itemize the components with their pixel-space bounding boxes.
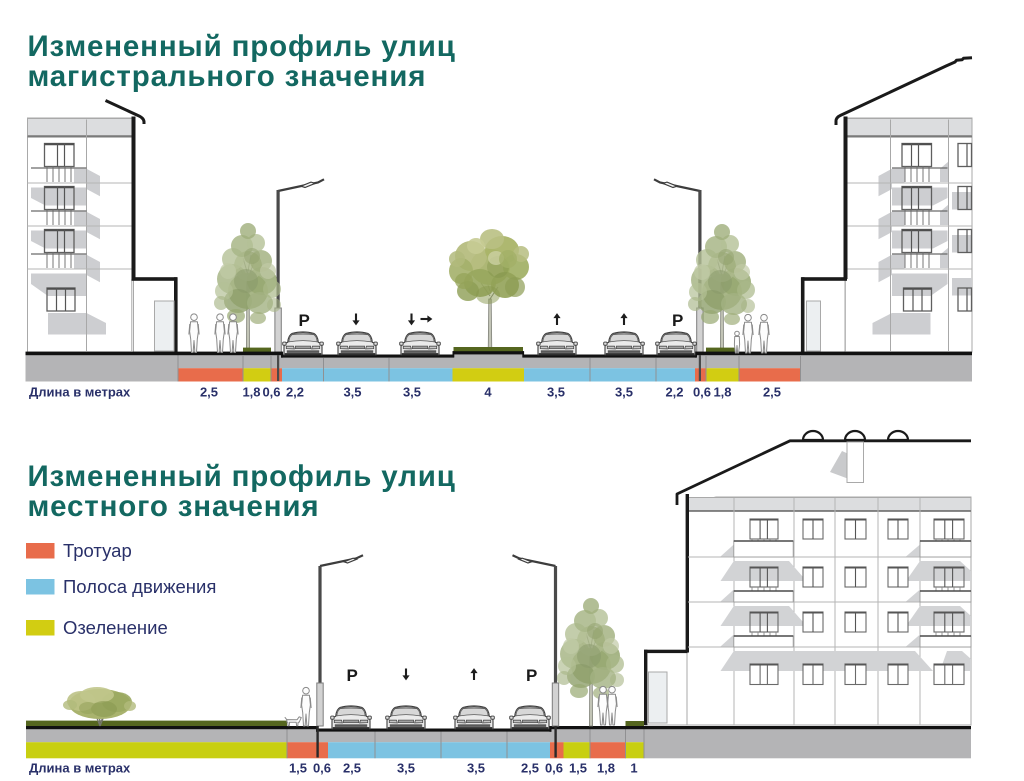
svg-text:0,6: 0,6: [545, 761, 563, 776]
svg-text:3,5: 3,5: [343, 385, 361, 400]
svg-text:0,6: 0,6: [313, 761, 331, 776]
svg-text:3,5: 3,5: [615, 385, 633, 400]
svg-text:Длина в метрах: Длина в метрах: [29, 761, 131, 776]
svg-text:Измененный профиль улиц: Измененный профиль улиц: [28, 30, 456, 63]
svg-text:1: 1: [630, 761, 637, 776]
svg-text:2,5: 2,5: [763, 385, 781, 400]
svg-text:3,5: 3,5: [547, 385, 565, 400]
svg-text:2,5: 2,5: [200, 385, 218, 400]
svg-text:1,5: 1,5: [569, 761, 587, 776]
svg-text:P: P: [347, 666, 358, 685]
svg-text:2,2: 2,2: [665, 385, 683, 400]
svg-text:1,8: 1,8: [597, 761, 615, 776]
svg-text:0,6: 0,6: [262, 385, 280, 400]
svg-text:P: P: [526, 666, 537, 685]
svg-text:2,5: 2,5: [521, 761, 539, 776]
svg-text:Полоса движения: Полоса движения: [63, 576, 216, 597]
svg-text:3,5: 3,5: [467, 761, 485, 776]
svg-text:магистрального значения: магистрального значения: [28, 60, 427, 93]
svg-text:3,5: 3,5: [397, 761, 415, 776]
svg-text:Длина в метрах: Длина в метрах: [29, 385, 131, 400]
svg-text:P: P: [672, 311, 683, 330]
svg-text:Тротуар: Тротуар: [63, 540, 132, 561]
svg-text:1,8: 1,8: [242, 385, 260, 400]
svg-text:P: P: [299, 311, 310, 330]
svg-text:2,5: 2,5: [343, 761, 361, 776]
svg-text:1,8: 1,8: [713, 385, 731, 400]
svg-text:1,5: 1,5: [289, 761, 307, 776]
svg-text:Озеленение: Озеленение: [63, 617, 168, 638]
svg-text:3,5: 3,5: [403, 385, 421, 400]
svg-text:4: 4: [484, 385, 492, 400]
svg-text:2,2: 2,2: [286, 385, 304, 400]
svg-text:Измененный профиль улиц: Измененный профиль улиц: [28, 460, 456, 493]
svg-text:0,6: 0,6: [693, 385, 711, 400]
svg-text:местного значения: местного значения: [28, 490, 320, 523]
